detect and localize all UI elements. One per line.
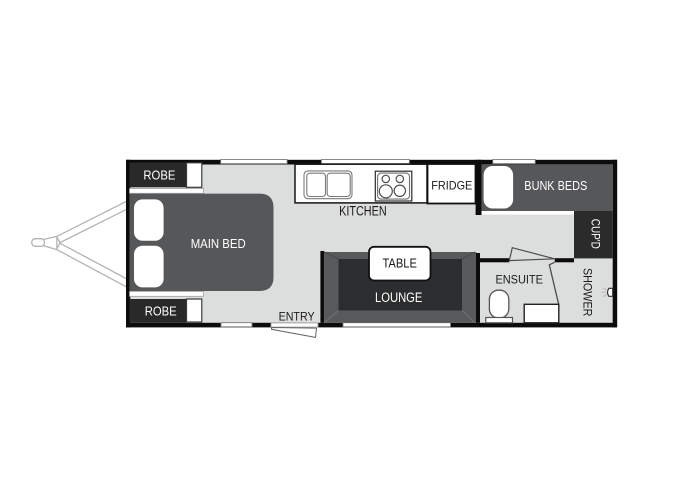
svg-text:LOUNGE: LOUNGE	[375, 290, 423, 305]
svg-text:ROBE: ROBE	[145, 303, 177, 318]
svg-text:TABLE: TABLE	[382, 257, 417, 271]
svg-text:ROBE: ROBE	[143, 167, 175, 182]
svg-text:FRIDGE: FRIDGE	[431, 178, 472, 192]
svg-text:BUNK BEDS: BUNK BEDS	[524, 178, 587, 193]
svg-text:MAIN BED: MAIN BED	[191, 236, 246, 251]
svg-text:CUP'D: CUP'D	[589, 219, 601, 249]
svg-text:ENSUITE: ENSUITE	[495, 272, 543, 286]
svg-text:KITCHEN: KITCHEN	[339, 204, 387, 219]
svg-text:ENTRY: ENTRY	[279, 310, 315, 324]
svg-text:SHOWER: SHOWER	[581, 268, 595, 317]
